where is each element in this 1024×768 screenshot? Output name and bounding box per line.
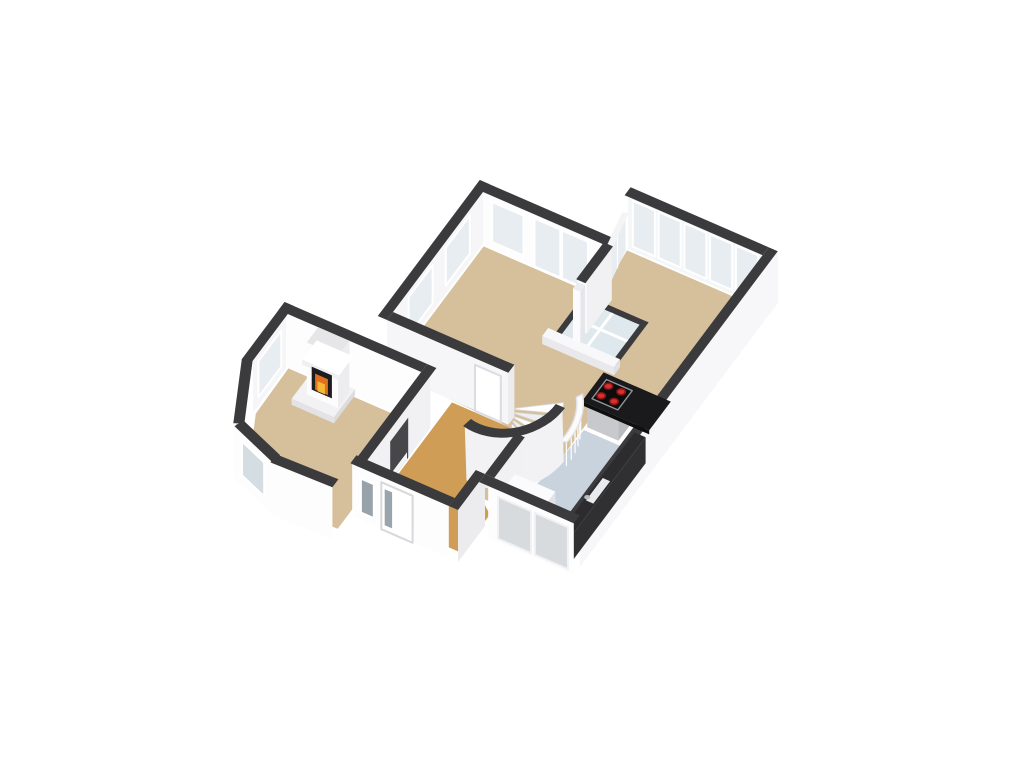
french-door-left: [535, 218, 561, 277]
front-door-glass: [385, 489, 392, 528]
cooktop-burner-1: [604, 383, 612, 389]
living-south-door: [475, 365, 501, 422]
floor-plan-viewport: [0, 0, 1024, 768]
cooktop-burner-4: [610, 398, 618, 404]
junction-column-east: [580, 285, 585, 343]
sunroom-window-4: [710, 234, 732, 290]
cooktop-burner-3: [597, 393, 605, 399]
sunroom-window-2: [659, 212, 681, 268]
sunroom-window-1: [633, 201, 655, 257]
stair-balustrade-spindle-7: [566, 439, 567, 467]
living-south-wall-cap: [508, 365, 514, 425]
bay-wall-1-band: [233, 360, 252, 423]
floor-plan-3d: [0, 0, 1024, 768]
junction-column-south: [573, 288, 580, 343]
kitchen-faucet: [584, 495, 590, 499]
hall-side-window: [361, 479, 374, 519]
sunroom-window-3: [684, 223, 706, 279]
cooktop-burner-2: [617, 389, 625, 395]
